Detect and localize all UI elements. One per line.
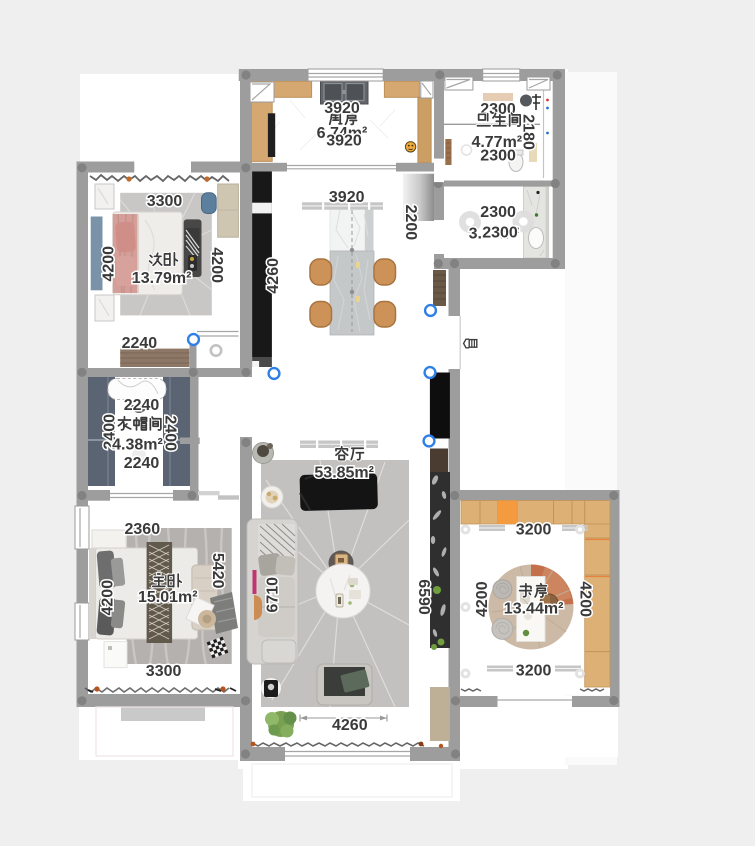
svg-text:2300: 2300 — [480, 148, 516, 165]
svg-text:2200: 2200 — [402, 205, 419, 241]
svg-text:2300: 2300 — [480, 204, 516, 221]
svg-text:4260: 4260 — [265, 258, 282, 294]
svg-text:53.85m²: 53.85m² — [314, 465, 374, 482]
svg-text:3200: 3200 — [516, 522, 552, 539]
svg-text:3920: 3920 — [326, 133, 362, 150]
svg-text:2240: 2240 — [124, 397, 160, 414]
svg-text:6710: 6710 — [264, 577, 281, 613]
svg-text:4200: 4200 — [576, 581, 593, 617]
svg-text:4260: 4260 — [332, 717, 368, 734]
svg-text:5420: 5420 — [209, 553, 226, 589]
svg-text:4200: 4200 — [101, 246, 118, 282]
svg-text:4.38m²: 4.38m² — [112, 437, 163, 454]
svg-text:3920: 3920 — [324, 100, 360, 117]
svg-text:2400: 2400 — [161, 415, 178, 451]
svg-text:2360: 2360 — [125, 521, 161, 538]
svg-text:2240: 2240 — [124, 455, 160, 472]
svg-text:2300: 2300 — [482, 225, 518, 242]
svg-text:3300: 3300 — [146, 663, 182, 680]
svg-text:3200: 3200 — [516, 663, 552, 680]
svg-text:15.01m²: 15.01m² — [138, 589, 198, 606]
svg-text:4200: 4200 — [474, 581, 491, 617]
svg-text:2240: 2240 — [122, 335, 158, 352]
svg-text:3920: 3920 — [329, 189, 365, 206]
svg-text:3300: 3300 — [147, 193, 183, 210]
svg-text:4200: 4200 — [208, 247, 225, 283]
svg-text:6590: 6590 — [415, 579, 432, 615]
svg-text:13.44m²: 13.44m² — [504, 601, 564, 618]
svg-text:13.79m²: 13.79m² — [132, 270, 192, 287]
svg-text:4200: 4200 — [100, 580, 117, 616]
